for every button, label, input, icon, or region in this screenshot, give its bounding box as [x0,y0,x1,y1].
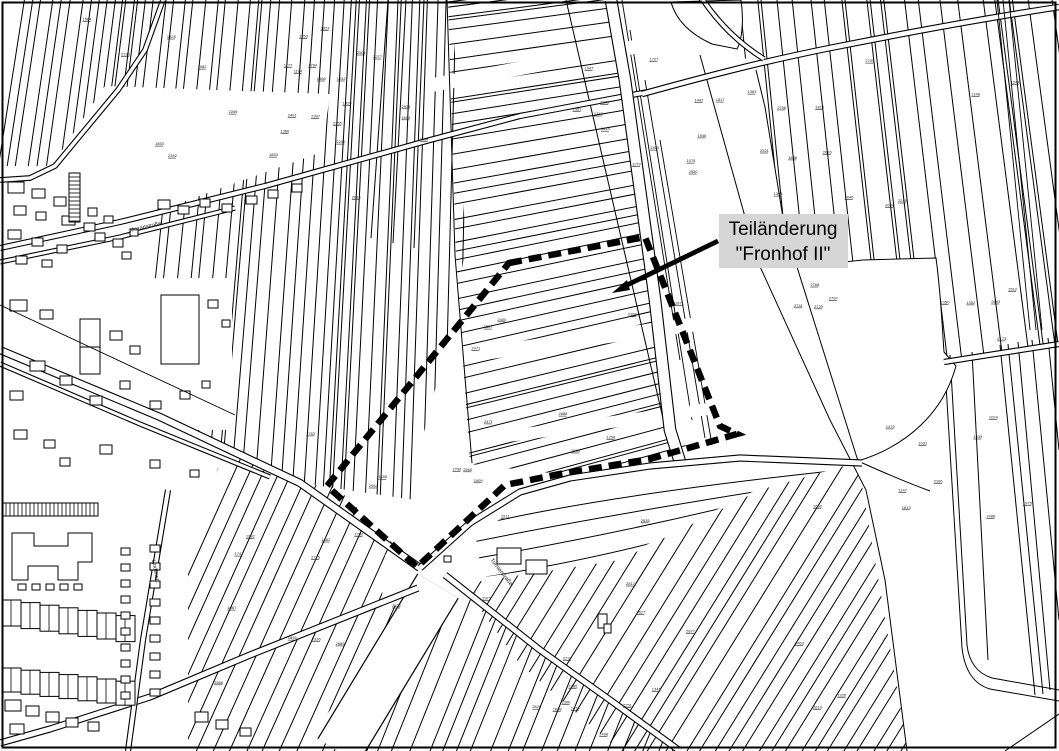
svg-text:2501: 2501 [357,50,367,55]
svg-text:2173: 2173 [997,336,1007,341]
svg-text:1747: 1747 [234,551,244,556]
svg-text:2530: 2530 [689,169,699,174]
svg-text:1366: 1366 [280,128,290,133]
svg-text:2400: 2400 [497,317,507,322]
svg-text:2835: 2835 [641,518,651,523]
svg-text:1352: 1352 [966,300,976,305]
svg-text:1414: 1414 [601,126,611,131]
svg-text:1909: 1909 [474,478,484,483]
svg-text:2797: 2797 [829,296,839,301]
svg-text:2964: 2964 [369,483,379,488]
svg-text:2237: 2237 [563,656,573,661]
svg-text:1946: 1946 [698,133,708,138]
svg-text:1992: 1992 [246,534,256,539]
svg-text:2471: 2471 [484,419,494,424]
svg-text:2564: 2564 [463,467,473,472]
svg-text:2768: 2768 [810,282,820,287]
svg-text:2588: 2588 [214,680,224,685]
svg-text:1326: 1326 [837,693,847,698]
svg-text:2689: 2689 [336,641,346,646]
svg-text:2264: 2264 [628,312,638,317]
svg-text:2627: 2627 [636,610,646,615]
svg-text:1179: 1179 [632,162,641,167]
svg-text:1341: 1341 [652,687,662,692]
svg-text:1067: 1067 [227,605,237,610]
svg-text:1818: 1818 [815,104,825,109]
svg-text:2522: 2522 [392,603,402,608]
svg-text:1042: 1042 [337,76,347,81]
svg-text:2693: 2693 [991,299,1001,304]
svg-text:2166: 2166 [934,479,944,484]
svg-text:1258: 1258 [606,435,616,440]
svg-text:1470: 1470 [886,424,896,429]
svg-text:1742: 1742 [594,111,604,116]
svg-text:2829: 2829 [532,704,542,709]
svg-text:1325: 1325 [167,34,177,39]
svg-text:1243: 1243 [1011,80,1021,85]
svg-text:1474: 1474 [571,706,581,711]
svg-text:2269: 2269 [229,109,239,114]
svg-text:1551: 1551 [573,107,583,112]
svg-text:2245: 2245 [898,198,908,203]
svg-text:2463: 2463 [795,641,805,646]
svg-text:1363: 1363 [747,89,757,94]
svg-text:1853: 1853 [269,152,279,157]
svg-text:2376: 2376 [600,100,610,105]
svg-text:1300: 1300 [562,699,572,704]
svg-text:1189: 1189 [378,474,387,479]
svg-text:1600: 1600 [813,503,823,508]
svg-text:2150: 2150 [941,299,951,304]
svg-text:1511: 1511 [501,514,510,519]
svg-text:2729: 2729 [814,304,824,309]
svg-text:1385: 1385 [569,684,579,689]
svg-text:2756: 2756 [777,105,787,110]
svg-text:1164: 1164 [294,69,303,74]
svg-text:1154: 1154 [420,137,429,142]
svg-text:2817: 2817 [626,581,636,586]
svg-text:1420: 1420 [343,100,353,105]
svg-text:2240: 2240 [336,139,346,144]
svg-text:1363: 1363 [650,145,660,150]
svg-text:1584: 1584 [83,17,93,22]
svg-text:2255: 2255 [333,120,343,125]
svg-text:2071: 2071 [471,345,481,350]
svg-text:2616: 2616 [823,150,833,155]
svg-text:1836: 1836 [788,155,798,160]
svg-text:1512: 1512 [1008,287,1018,292]
svg-text:1442: 1442 [694,98,704,103]
svg-text:2336: 2336 [312,636,322,641]
svg-text:2282: 2282 [168,153,178,158]
svg-text:2521: 2521 [760,148,770,153]
svg-text:1813: 1813 [902,505,912,510]
svg-text:"Fronhof II": "Fronhof II" [736,244,831,265]
svg-text:1462: 1462 [321,537,331,542]
svg-text:1763: 1763 [306,431,316,436]
svg-text:1790: 1790 [354,532,364,537]
svg-text:2877: 2877 [686,628,696,633]
svg-text:1764: 1764 [308,62,318,67]
svg-text:1853: 1853 [155,141,165,146]
svg-text:2741: 2741 [794,303,804,308]
svg-text:2994: 2994 [571,448,581,453]
svg-text:1817: 1817 [716,97,726,102]
svg-text:1148: 1148 [971,91,980,96]
svg-text:1838: 1838 [553,706,563,711]
svg-text:1855: 1855 [288,635,298,640]
svg-text:2046: 2046 [845,195,855,200]
svg-text:1082: 1082 [198,64,208,69]
svg-text:1339: 1339 [973,434,983,439]
svg-text:1604: 1604 [401,115,411,120]
svg-text:1075: 1075 [687,158,697,163]
svg-text:1024: 1024 [989,415,999,420]
svg-text:1253: 1253 [299,34,309,39]
svg-text:2888: 2888 [559,411,569,416]
svg-text:1975: 1975 [1023,501,1033,506]
svg-text:1147: 1147 [898,488,907,493]
svg-text:1366: 1366 [317,76,327,81]
svg-text:1177: 1177 [284,63,293,68]
svg-text:2088: 2088 [986,513,996,518]
svg-text:2939: 2939 [402,104,412,109]
svg-text:2401: 2401 [288,113,298,118]
svg-text:1947: 1947 [585,66,595,71]
svg-text:1871: 1871 [675,301,685,306]
svg-text:2251: 2251 [623,703,633,708]
svg-text:2277: 2277 [373,54,383,59]
svg-text:2823: 2823 [321,26,331,31]
svg-text:Teiländerung: Teiländerung [729,219,838,240]
svg-text:1031: 1031 [918,440,928,445]
svg-text:2196: 2196 [121,51,131,56]
svg-text:2634: 2634 [885,202,895,207]
svg-text:1395: 1395 [774,191,784,196]
svg-text:2790: 2790 [453,466,463,471]
svg-text:1527: 1527 [484,324,494,329]
svg-text:2614: 2614 [813,705,823,710]
svg-text:2614: 2614 [352,195,362,200]
svg-text:2496: 2496 [599,731,609,736]
svg-text:2397: 2397 [311,114,321,119]
svg-text:2973: 2973 [482,596,492,601]
svg-text:2705: 2705 [865,58,875,63]
svg-text:2715: 2715 [311,554,321,559]
svg-text:1727: 1727 [649,57,659,62]
